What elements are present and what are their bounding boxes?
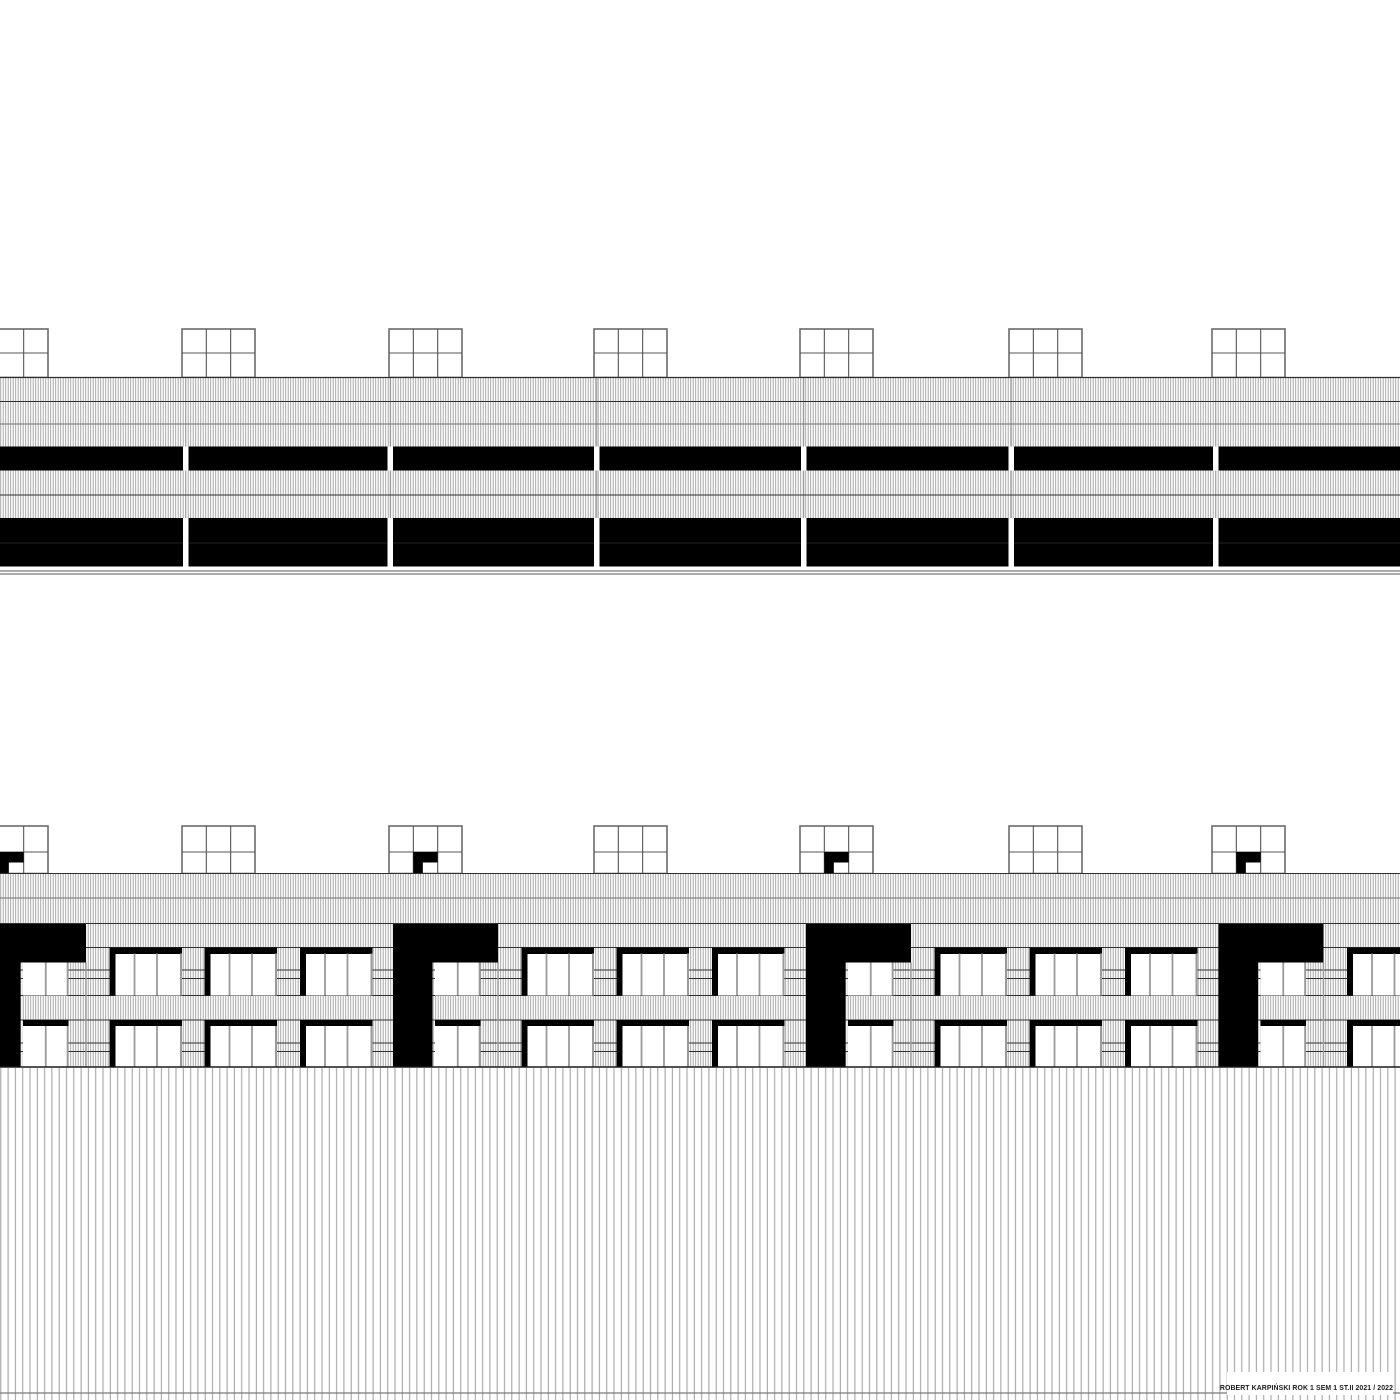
band-gap: [1009, 518, 1015, 567]
skylight-gamma-mark: [413, 852, 423, 874]
window-glass: [1125, 1020, 1198, 1067]
roof-skylight: [1212, 329, 1285, 378]
window-header: [300, 1020, 373, 1026]
window-jamb: [110, 1020, 116, 1067]
window-glass: [110, 948, 183, 996]
band-gap: [801, 447, 807, 471]
band-gap: [1009, 447, 1015, 471]
window-glass: [1030, 1020, 1103, 1067]
window-jamb: [712, 1020, 718, 1067]
window-header: [1347, 1020, 1400, 1026]
window-header: [522, 948, 595, 955]
window-glass: [300, 948, 373, 996]
window-jamb: [935, 1020, 941, 1067]
band-gap: [1213, 518, 1219, 567]
window-right-edge: [67, 963, 69, 996]
drawing-canvas: ROBERT KARPIŃSKI ROK 1 SEM 1 ST.II 2021 …: [0, 0, 1400, 1400]
window-header: [1030, 1020, 1103, 1026]
window-glass: [712, 1020, 785, 1067]
window-right-edge: [1005, 1026, 1007, 1067]
window-right-edge: [1100, 1026, 1102, 1067]
window-header: [935, 948, 1008, 955]
roof-skylight: [1009, 329, 1082, 378]
window-right-edge: [371, 1026, 373, 1067]
title-block-text: ROBERT KARPIŃSKI ROK 1 SEM 1 ST.II 2021 …: [1227, 1372, 1393, 1395]
window-jamb: [205, 948, 211, 996]
skylight-glass: [389, 826, 462, 874]
window-header: [205, 1020, 278, 1026]
window-glass: [205, 948, 278, 996]
window-right-edge: [67, 1026, 69, 1067]
window-right-edge: [1005, 954, 1007, 996]
window-jamb: [110, 948, 116, 996]
window-glass: [617, 948, 690, 996]
window-header: [712, 948, 785, 955]
window-right-edge: [1196, 954, 1198, 996]
window-glass: [1030, 948, 1103, 996]
tower-leg: [393, 924, 433, 1067]
window-jamb: [522, 948, 528, 996]
window-glass: [1347, 1020, 1400, 1067]
window-right-edge: [892, 1026, 894, 1067]
window-header: [23, 1020, 69, 1026]
window-right-edge: [592, 1026, 594, 1067]
window-glass: [522, 948, 595, 996]
window-glass: [1347, 948, 1400, 996]
window-jamb: [300, 948, 306, 996]
window-header: [1125, 948, 1198, 955]
window-header: [935, 1020, 1008, 1026]
window-header: [617, 948, 690, 955]
window-glass: [300, 1020, 373, 1067]
window-glass: [712, 948, 785, 996]
window-jamb: [1030, 948, 1036, 996]
window-jamb: [522, 1020, 528, 1067]
roof-skylight: [594, 826, 667, 874]
window-band: [0, 518, 1400, 567]
fence-hatch: [0, 1068, 1400, 1400]
window-right-edge: [687, 954, 689, 996]
band-gap: [388, 518, 394, 567]
roof-skylight: [594, 329, 667, 378]
window-right-edge: [1304, 1026, 1306, 1067]
window-glass: [110, 1020, 183, 1067]
window-jamb: [617, 948, 623, 996]
window-jamb: [712, 948, 718, 996]
window-jamb: [1347, 1020, 1353, 1067]
window-right-edge: [479, 963, 481, 996]
skylight-glass: [1212, 826, 1285, 874]
window-glass: [935, 948, 1008, 996]
window-header: [110, 948, 183, 955]
window-glass: [205, 1020, 278, 1067]
roof-skylight: [389, 826, 462, 874]
roof-skylight: [182, 329, 255, 378]
roof-skylight: [1212, 826, 1285, 874]
window-jamb: [1125, 1020, 1131, 1067]
band-gap: [1213, 447, 1219, 471]
window-header: [522, 1020, 595, 1026]
window-right-edge: [275, 1026, 277, 1067]
band-gap: [801, 518, 807, 567]
roof-skylight: [389, 329, 462, 378]
window-jamb: [1125, 948, 1131, 996]
top-elevation: [0, 329, 1400, 574]
window-header: [1030, 948, 1103, 955]
roof-skylight: [800, 329, 873, 378]
window-jamb: [935, 948, 941, 996]
roof-skylight: [1009, 826, 1082, 874]
window-glass: [1125, 948, 1198, 996]
window-glass: [617, 1020, 690, 1067]
skylight-gamma-mark: [824, 852, 834, 874]
window-band: [0, 447, 1400, 471]
window-right-edge: [783, 954, 785, 996]
window-glass: [935, 1020, 1008, 1067]
window-right-edge: [687, 1026, 689, 1067]
skylight-gamma-mark: [0, 852, 9, 874]
tower-leg: [1219, 924, 1259, 1067]
window-header: [848, 1020, 894, 1026]
window-jamb: [205, 1020, 211, 1067]
window-right-edge: [275, 954, 277, 996]
band-gap: [183, 447, 189, 471]
tower-leg: [0, 924, 21, 1067]
tower-leg: [806, 924, 846, 1067]
roof-skylight: [0, 329, 48, 378]
window-jamb: [617, 1020, 623, 1067]
window-header: [1125, 1020, 1198, 1026]
band-gap: [183, 518, 189, 567]
window-header: [435, 1020, 481, 1026]
window-right-edge: [783, 1026, 785, 1067]
skylight-glass: [1009, 826, 1082, 874]
window-right-edge: [371, 954, 373, 996]
window-header: [1261, 1020, 1307, 1026]
window-right-edge: [892, 963, 894, 996]
roof-skylight: [0, 826, 48, 874]
window-header: [617, 1020, 690, 1026]
skylight-glass: [182, 826, 255, 874]
window-right-edge: [180, 1026, 182, 1067]
elevations-drawing: [0, 0, 1400, 1400]
window-right-edge: [592, 954, 594, 996]
window-header: [300, 948, 373, 955]
skylight-glass: [800, 826, 873, 874]
skylight-glass: [594, 826, 667, 874]
window-header: [205, 948, 278, 955]
window-glass: [522, 1020, 595, 1067]
bottom-elevation: [0, 826, 1400, 1400]
window-right-edge: [180, 954, 182, 996]
window-right-edge: [1304, 963, 1306, 996]
window-jamb: [300, 1020, 306, 1067]
window-header: [110, 1020, 183, 1026]
window-right-edge: [1196, 1026, 1198, 1067]
window-header: [1347, 948, 1400, 955]
roof-skylight: [800, 826, 873, 874]
band-gap: [388, 447, 394, 471]
window-right-edge: [1100, 954, 1102, 996]
window-jamb: [1030, 1020, 1036, 1067]
roof-skylight: [182, 826, 255, 874]
window-header: [712, 1020, 785, 1026]
band-gap: [594, 447, 600, 471]
band-gap: [594, 518, 600, 567]
skylight-gamma-mark: [1236, 852, 1246, 874]
window-jamb: [1347, 948, 1353, 996]
window-right-edge: [479, 1026, 481, 1067]
